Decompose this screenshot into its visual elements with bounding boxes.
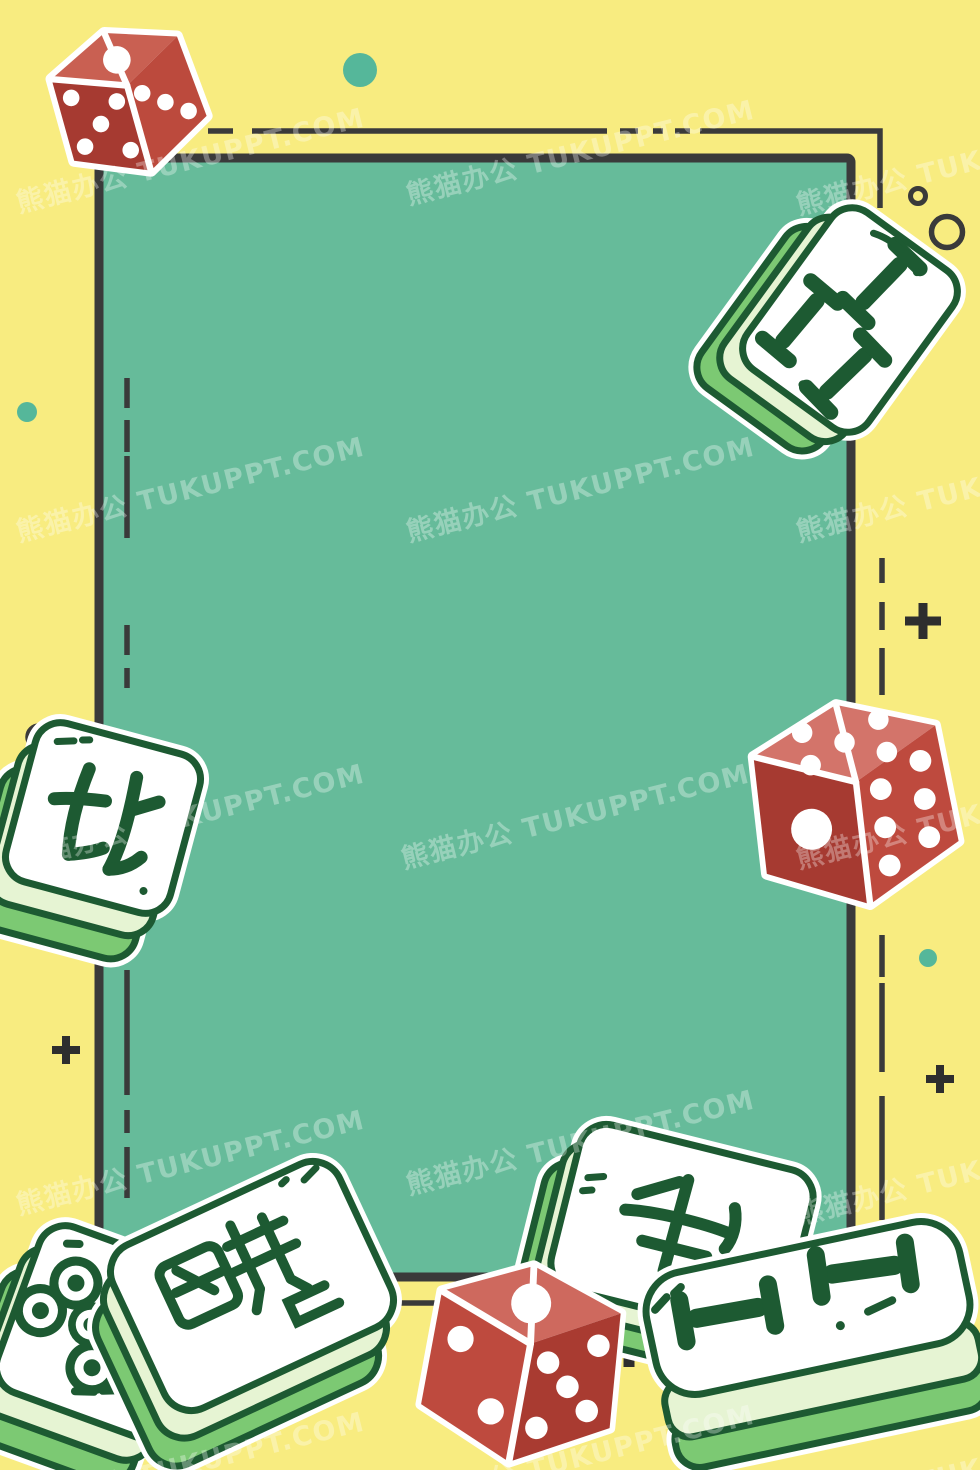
watermark-text: 熊猫办公 TUKUPPT.COM <box>402 425 759 549</box>
watermark-text: 熊猫办公 TUKUPPT.COM <box>397 752 754 876</box>
watermark-text: 熊猫办公 TUKUPPT.COM <box>12 96 369 220</box>
watermark-text: 熊猫办公 TUKUPPT.COM <box>12 1400 369 1470</box>
watermark-text: 熊猫办公 TUKUPPT.COM <box>12 425 369 549</box>
watermark-text: 熊猫办公 TUKUPPT.COM <box>792 1406 980 1470</box>
watermark-text: 熊猫办公 TUKUPPT.COM <box>792 1108 980 1232</box>
watermark-text: 熊猫办公 TUKUPPT.COM <box>12 1098 369 1222</box>
watermark-text: 熊猫办公 TUKUPPT.COM <box>792 752 980 876</box>
watermark-text: 熊猫办公 TUKUPPT.COM <box>402 88 759 212</box>
poster-canvas: 熊猫办公 TUKUPPT.COM熊猫办公 TUKUPPT.COM熊猫办公 TUK… <box>0 0 980 1470</box>
watermark-layer: 熊猫办公 TUKUPPT.COM熊猫办公 TUKUPPT.COM熊猫办公 TUK… <box>0 0 980 1470</box>
watermark-text: 熊猫办公 TUKUPPT.COM <box>402 1078 759 1202</box>
watermark-text: 熊猫办公 TUKUPPT.COM <box>402 1393 759 1470</box>
watermark-text: 熊猫办公 TUKUPPT.COM <box>792 98 980 222</box>
watermark-text: 熊猫办公 TUKUPPT.COM <box>12 752 369 876</box>
watermark-text: 熊猫办公 TUKUPPT.COM <box>792 425 980 549</box>
